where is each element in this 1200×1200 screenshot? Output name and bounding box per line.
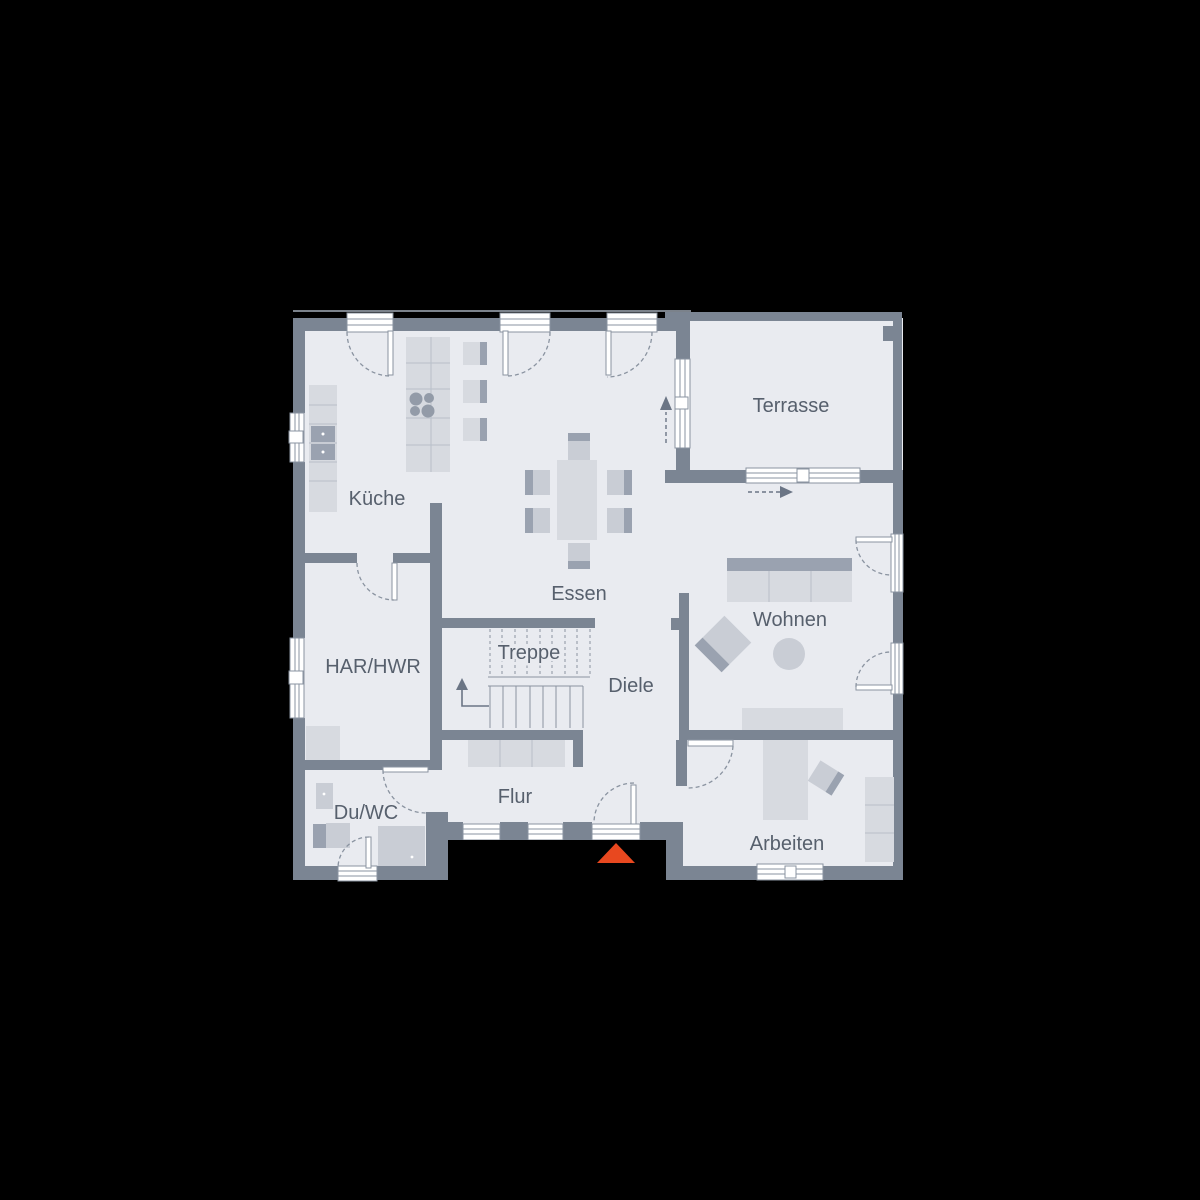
oven-knob [322, 433, 325, 436]
wardrobe [468, 740, 565, 767]
wall [676, 447, 690, 470]
sliding-door-handle [797, 469, 809, 482]
room-label-du-wc: Du/WC [334, 802, 398, 824]
bar-stools [463, 342, 487, 441]
wall-stub [671, 618, 679, 630]
room-label-terrasse: Terrasse [753, 395, 830, 417]
dining-chair [568, 441, 590, 460]
room-label-wohnen: Wohnen [753, 609, 827, 631]
dining-chair-back [525, 508, 533, 533]
room-label-flur: Flur [498, 786, 533, 808]
wall-terrace-pillar [883, 326, 893, 341]
wall [676, 866, 757, 880]
wall-terrace-top [665, 312, 901, 321]
window [500, 313, 550, 332]
dining-chair [568, 543, 590, 561]
wall-stair-top [442, 618, 595, 628]
bar-stool-back [480, 380, 487, 403]
window [891, 643, 903, 694]
bar-stool-back [480, 342, 487, 365]
door-leaf [366, 837, 371, 868]
dining-chair-back [525, 470, 533, 495]
window [891, 534, 903, 592]
cooktop-burner [410, 393, 423, 406]
entrance-door-leaf [631, 785, 636, 824]
entrance-porch [448, 840, 666, 893]
sofa-back [727, 558, 852, 571]
sliding-door-handle [675, 397, 688, 409]
room-label-diele: Diele [608, 675, 654, 697]
desk [763, 740, 808, 820]
wall [550, 318, 607, 331]
window [463, 824, 500, 840]
wall [430, 503, 442, 770]
washbasin [326, 823, 350, 848]
cooktop-burner [410, 406, 420, 416]
washing-machine [306, 726, 340, 760]
wall [665, 822, 683, 880]
wall [823, 866, 903, 880]
room-label-arbeiten: Arbeiten [750, 833, 825, 855]
coffee-table [773, 638, 805, 670]
floor-plan-svg: Küche Essen Terrasse Wohnen HAR/HWR Trep… [0, 0, 1200, 1200]
dining-chair-back [568, 433, 590, 441]
door-leaf [388, 331, 393, 375]
toilet-dot [323, 793, 326, 796]
cooktop-burner [424, 393, 434, 403]
wall-stair-stub [573, 730, 583, 767]
window-handle [289, 671, 303, 684]
wall [563, 822, 592, 840]
door-leaf [383, 767, 428, 772]
wall [377, 866, 448, 880]
room-label-kueche: Küche [349, 488, 406, 510]
room-label-treppe: Treppe [498, 642, 561, 664]
entrance-door-threshold [592, 824, 640, 840]
window [528, 824, 563, 840]
washbasin-counter [313, 824, 326, 848]
floor-plan: Küche Essen Terrasse Wohnen HAR/HWR Trep… [0, 0, 1200, 1200]
bar-stool-back [480, 418, 487, 441]
wall [293, 462, 305, 638]
window-handle [289, 431, 303, 443]
sideboard [742, 708, 843, 730]
roof-edge-line [293, 310, 691, 312]
wall [293, 318, 305, 413]
door-leaf [856, 537, 892, 542]
shelf [865, 777, 894, 862]
wall-wohnen-arbeiten [679, 730, 893, 740]
wall [426, 812, 448, 868]
hall-furniture [468, 740, 565, 767]
oven-knob [322, 451, 325, 454]
door-leaf [856, 685, 892, 690]
dining-chair-back [568, 561, 590, 569]
window [347, 313, 393, 332]
wall-wohnen-left [679, 593, 689, 740]
wall [293, 718, 305, 880]
window [607, 313, 657, 332]
wall-terrace-right [893, 312, 902, 470]
room-label-essen: Essen [551, 583, 607, 605]
door-leaf [392, 563, 397, 600]
toilet [316, 783, 333, 809]
dining-chair-back [624, 470, 632, 495]
wall [293, 866, 338, 880]
room-label-har-hwr: HAR/HWR [325, 656, 421, 678]
door-leaf [688, 740, 733, 746]
sofa-seat [727, 571, 852, 602]
wall-arbeiten-left [676, 740, 687, 786]
window-handle [785, 866, 796, 878]
door-leaf [503, 331, 508, 375]
dining-table [557, 460, 597, 540]
wall [500, 822, 528, 840]
wall [676, 321, 690, 360]
cooktop-burner [422, 405, 435, 418]
shower [378, 826, 425, 866]
wall [305, 553, 357, 563]
wall-stair-bottom [442, 730, 583, 740]
door-leaf [606, 331, 611, 375]
wall [393, 318, 500, 331]
shower-drain [411, 856, 414, 859]
dining-chair-back [624, 508, 632, 533]
